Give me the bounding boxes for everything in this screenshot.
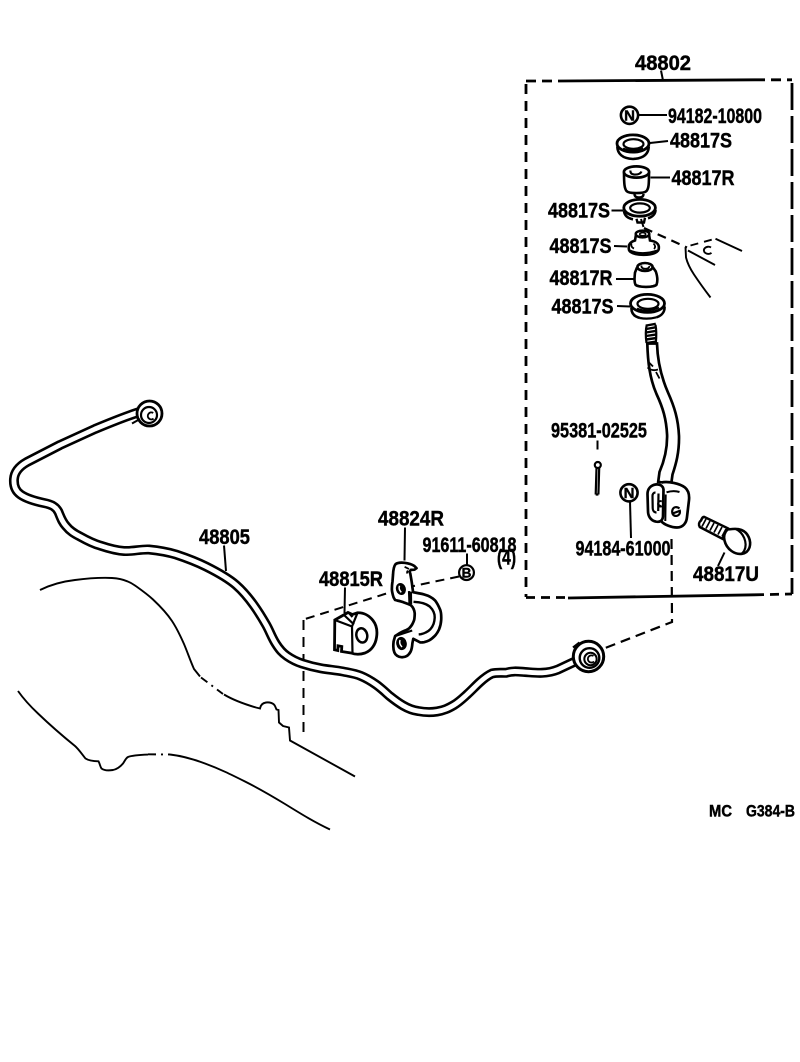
- svg-text:48824R: 48824R: [378, 508, 444, 531]
- svg-text:48815R: 48815R: [319, 568, 383, 591]
- svg-text:N: N: [624, 485, 635, 502]
- svg-text:MC: MC: [709, 802, 732, 821]
- svg-text:48817S: 48817S: [552, 296, 614, 319]
- svg-text:48817S: 48817S: [550, 235, 612, 258]
- svg-text:G384-B: G384-B: [746, 802, 795, 821]
- svg-text:48802: 48802: [635, 52, 691, 75]
- svg-text:48817U: 48817U: [693, 563, 759, 586]
- svg-text:(4): (4): [497, 547, 516, 570]
- svg-text:48817S: 48817S: [670, 130, 732, 153]
- svg-text:95381-02525: 95381-02525: [551, 420, 647, 443]
- svg-text:B: B: [462, 566, 472, 581]
- svg-text:48817S: 48817S: [548, 200, 610, 223]
- svg-text:94184-61000: 94184-61000: [576, 538, 671, 561]
- svg-text:N: N: [624, 108, 635, 125]
- svg-text:48817R: 48817R: [672, 167, 735, 190]
- svg-text:48817R: 48817R: [550, 267, 613, 290]
- svg-text:94182-10800: 94182-10800: [668, 105, 762, 128]
